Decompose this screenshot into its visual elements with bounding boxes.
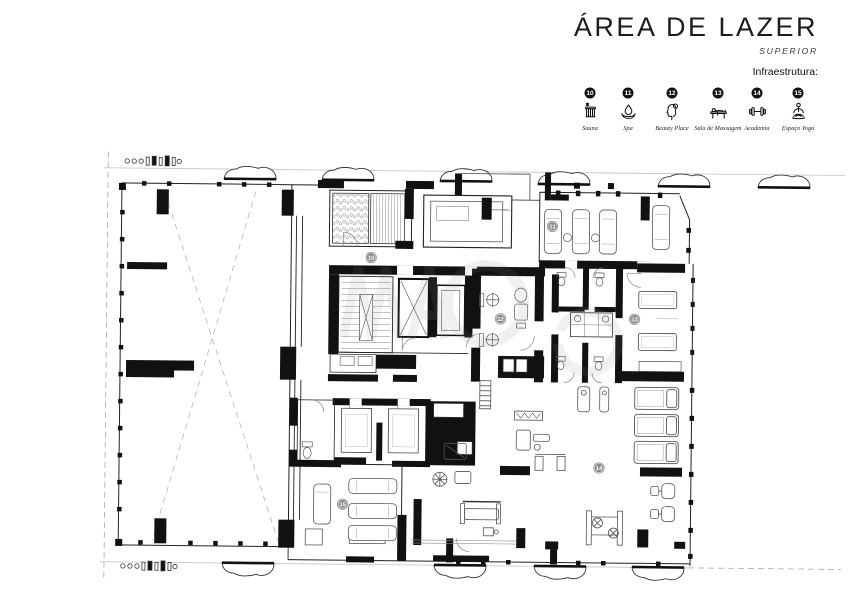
page-title: ÁREA DE LAZER [574, 12, 818, 43]
legend-badge: 15 [793, 88, 803, 98]
legend-label: Sauna [582, 125, 598, 133]
massage-table-icon [708, 101, 729, 122]
legend-heading: Infraestrutura: [753, 66, 818, 78]
spa-pool [423, 195, 512, 248]
sauna-room [329, 188, 414, 249]
legend-badge: 10 [585, 88, 595, 98]
legend-badge: 11 [623, 88, 633, 98]
legend-badge: 12 [667, 88, 677, 98]
treatment-rooms [289, 398, 476, 468]
legend-label: Beauty Place [655, 125, 688, 133]
plan-badge-number: 12 [497, 317, 504, 323]
legend-badge: 13 [713, 88, 723, 98]
page-subtitle: SUPERIOR [574, 46, 818, 56]
infrastructure-legend: 10 Sauna 11 Spa 12 Beauty Place 13 [560, 88, 826, 148]
spa-icon [618, 101, 639, 122]
dumbbell-icon [747, 101, 768, 122]
legend-label: Espaço Yoga [782, 125, 814, 133]
plan-badge-number: 10 [368, 256, 375, 262]
legend-label: Academia [744, 125, 769, 133]
header: ÁREA DE LAZER SUPERIOR [574, 12, 818, 56]
beauty-place-room [466, 267, 545, 383]
legend-badge: 14 [752, 88, 762, 98]
plan-badge-number: 14 [596, 466, 603, 472]
legend-label: Spa [623, 125, 632, 133]
spine-wall [278, 190, 303, 560]
legend-item-spa: 11 Spa [603, 88, 653, 133]
ornament-row-top [125, 155, 182, 166]
yoga-room [288, 460, 407, 561]
void-room [115, 181, 292, 548]
beauty-place-icon [662, 101, 683, 122]
plan-badge-number: 15 [339, 502, 346, 508]
small-wc [289, 398, 335, 466]
yoga-icon [788, 101, 809, 122]
sauna-icon [580, 101, 601, 122]
plan-badge-number: 13 [631, 317, 638, 323]
legend-item-espaco-yoga: 15 Espaço Yoga [773, 88, 823, 133]
legend-item-beauty-place: 12 Beauty Place [647, 88, 697, 133]
plan-badge-number: 11 [549, 224, 556, 230]
